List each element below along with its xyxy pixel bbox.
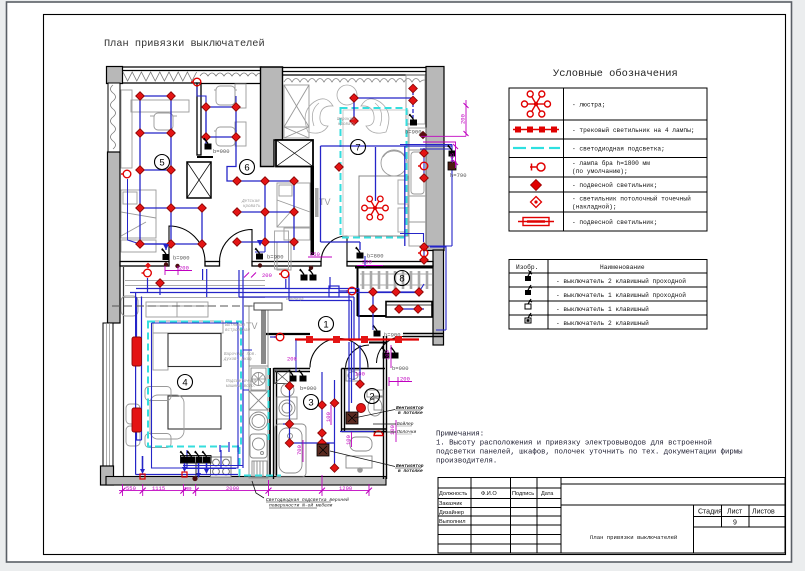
svg-text:Подсветочная: Подсветочная — [226, 380, 257, 384]
svg-text:Банница: Банница — [286, 298, 304, 302]
svg-text:кровать: кровать — [243, 205, 261, 209]
svg-text:Выполнил: Выполнил — [439, 519, 466, 525]
svg-text:445: 445 — [449, 153, 456, 163]
svg-text:b=900: b=900 — [267, 254, 284, 261]
svg-text:- светодиодная подсветка;: - светодиодная подсветка; — [572, 146, 665, 153]
svg-text:3: 3 — [308, 398, 313, 409]
svg-text:b=900: b=900 — [300, 385, 317, 392]
svg-text:200: 200 — [400, 376, 410, 383]
svg-text:1115: 1115 — [152, 485, 165, 492]
svg-text:300: 300 — [184, 488, 192, 492]
svg-text:700: 700 — [296, 445, 303, 455]
svg-text:9: 9 — [733, 520, 737, 527]
svg-text:h=790: h=790 — [450, 172, 467, 179]
svg-text:b=900: b=900 — [405, 129, 422, 136]
svg-text:6: 6 — [244, 163, 249, 174]
svg-text:- люстра;: - люстра; — [572, 102, 605, 109]
svg-text:Ф.И.О: Ф.И.О — [481, 491, 497, 497]
svg-text:Должность: Должность — [439, 491, 467, 497]
svg-text:b=900: b=900 — [384, 332, 401, 339]
svg-text:- подвесной светильник;: - подвесной светильник; — [572, 182, 657, 189]
svg-text:в потолке: в потолке — [398, 469, 423, 474]
svg-text:Условные обозначения: Условные обозначения — [553, 67, 678, 80]
svg-text:Изобр.: Изобр. — [516, 264, 538, 271]
svg-text:7: 7 — [355, 143, 360, 154]
svg-text:кровать: кровать — [338, 123, 356, 127]
svg-text:b=900: b=900 — [392, 365, 409, 372]
svg-text:духов. шкаф: духов. шкаф — [223, 357, 252, 362]
svg-text:Лист: Лист — [727, 509, 743, 516]
svg-text:Широкая: Широкая — [336, 118, 355, 122]
svg-text:- выключатель 2 клавишный прох: - выключатель 2 клавишный проходной — [556, 278, 686, 285]
svg-text:Варочная пов.: Варочная пов. — [224, 353, 257, 357]
svg-text:1: 1 — [323, 320, 328, 331]
svg-text:- подвесной светильник;: - подвесной светильник; — [572, 219, 657, 226]
svg-text:Стадия: Стадия — [698, 509, 722, 516]
svg-text:2000: 2000 — [226, 485, 239, 492]
svg-text:100: 100 — [384, 350, 391, 360]
svg-text:(накладной);: (накладной); — [572, 204, 617, 211]
svg-text:Наименование: Наименование — [600, 264, 645, 271]
svg-text:100: 100 — [355, 371, 365, 378]
svg-text:1200: 1200 — [339, 485, 352, 492]
svg-text:2: 2 — [369, 392, 374, 403]
svg-text:200: 200 — [179, 265, 189, 272]
svg-text:(по умолчанию);: (по умолчанию); — [572, 168, 628, 175]
svg-text:Листов: Листов — [752, 509, 775, 516]
svg-text:План привязки выключателей: План привязки выключателей — [590, 534, 677, 541]
svg-text:550: 550 — [126, 485, 136, 492]
svg-text:200: 200 — [287, 356, 297, 363]
svg-text:План привязки выключателей: План привязки выключателей — [104, 38, 265, 50]
svg-text:- выключатель 2 клавишный: - выключатель 2 клавишный — [556, 320, 649, 327]
svg-text:- выключатель 1 клавишный: - выключатель 1 клавишный — [556, 306, 649, 313]
svg-text:- выключатель 1 клавишный прох: - выключатель 1 клавишный проходной — [556, 292, 686, 299]
svg-text:200: 200 — [460, 114, 467, 124]
svg-text:- лампа бра h=1800 мм: - лампа бра h=1800 мм — [572, 160, 650, 167]
svg-text:4: 4 — [182, 378, 187, 389]
svg-text:- светильник потолочный точечн: - светильник потолочный точечный — [572, 196, 691, 203]
svg-text:b=900: b=900 — [173, 255, 190, 262]
svg-text:Заказчик: Заказчик — [439, 501, 463, 507]
svg-text:100: 100 — [389, 425, 396, 435]
svg-text:Дизайнер: Дизайнер — [439, 509, 464, 516]
svg-text:производителя.: производителя. — [436, 458, 497, 466]
svg-text:в потолке: в потолке — [398, 411, 423, 416]
svg-text:1. Высоту расположения и прив: 1. Высоту расположения и привязку электр… — [436, 439, 712, 448]
svg-text:250: 250 — [310, 251, 320, 258]
svg-text:b=900: b=900 — [213, 148, 230, 155]
svg-text:100: 100 — [345, 435, 352, 445]
svg-text:встроенная: встроенная — [225, 329, 251, 333]
svg-text:- трековый светильник на 4 лам: - трековый светильник на 4 лампы; — [572, 127, 695, 134]
svg-text:подсветки панелей, шкафов, пол: подсветки панелей, шкафов, полочек уточн… — [436, 448, 743, 457]
svg-text:100: 100 — [325, 412, 332, 422]
svg-text:поверхности N-ой мебели: поверхности N-ой мебели — [269, 502, 333, 509]
svg-text:8: 8 — [399, 274, 404, 285]
svg-text:200: 200 — [362, 259, 372, 266]
svg-text:Дата: Дата — [541, 491, 554, 497]
svg-text:Детская: Детская — [241, 200, 260, 204]
svg-text:машина встр.: машина встр. — [226, 385, 256, 389]
svg-text:Подпись: Подпись — [512, 491, 534, 497]
svg-text:5: 5 — [159, 158, 164, 169]
svg-text:Вытяжная: Вытяжная — [225, 324, 246, 328]
svg-text:Примечания:: Примечания: — [436, 431, 484, 439]
svg-text:200: 200 — [262, 272, 272, 279]
